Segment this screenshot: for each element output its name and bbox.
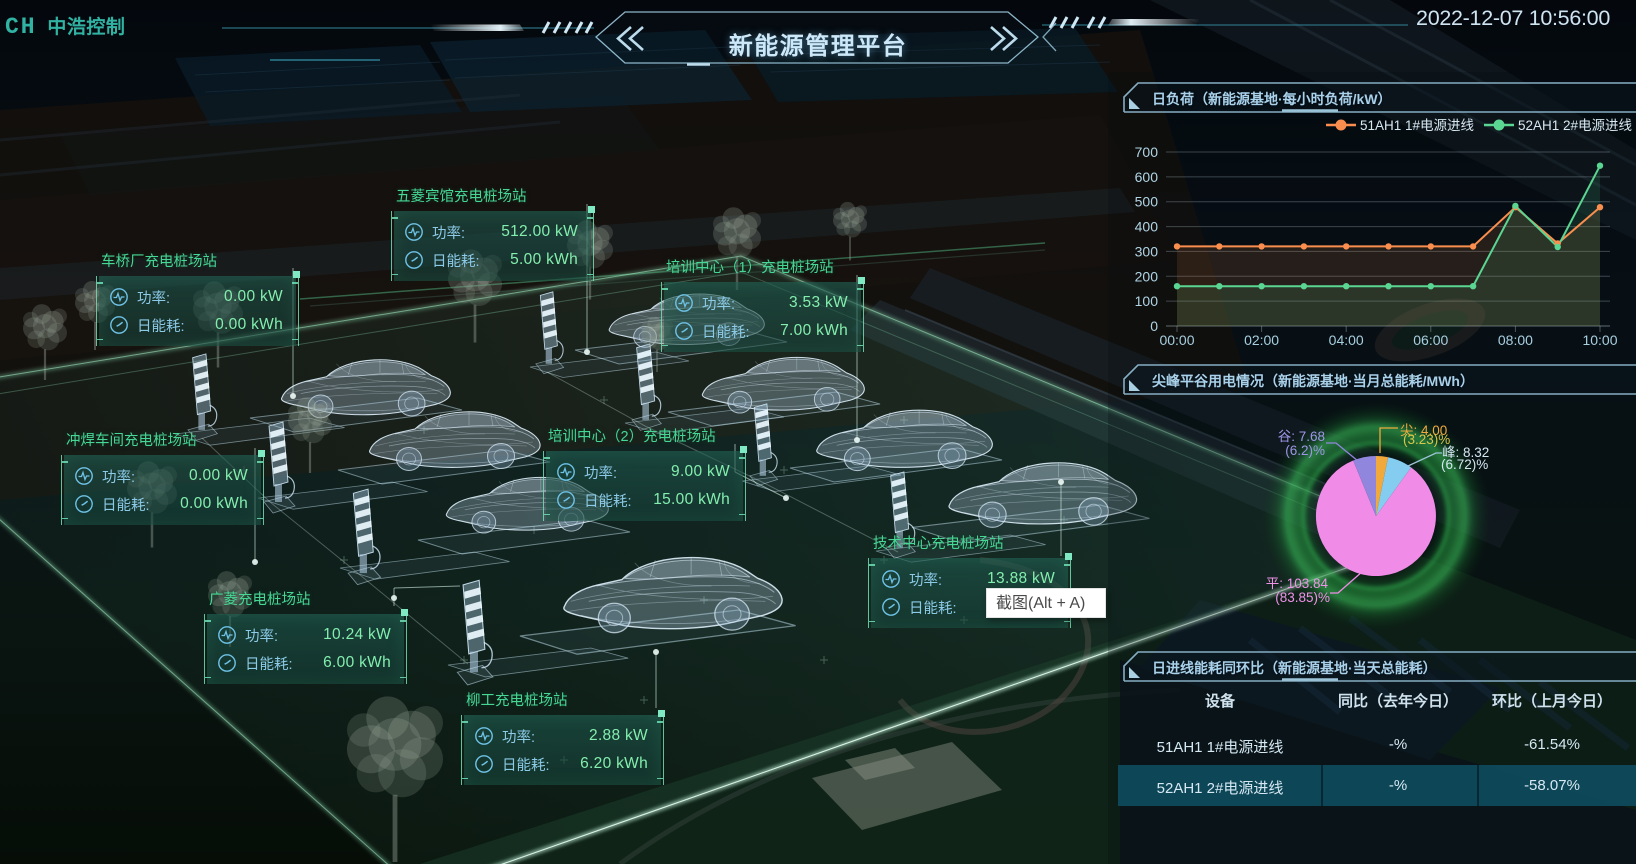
svg-text:谷: 7.68: 谷: 7.68 bbox=[1278, 429, 1325, 444]
svg-text:06:00: 06:00 bbox=[1413, 332, 1448, 348]
svg-text:00:00: 00:00 bbox=[1159, 332, 1194, 348]
svg-text:700: 700 bbox=[1135, 144, 1159, 160]
svg-text:500: 500 bbox=[1135, 194, 1159, 210]
svg-text:(83.85)%: (83.85)% bbox=[1275, 590, 1330, 605]
svg-text:100: 100 bbox=[1135, 293, 1159, 309]
svg-text:0: 0 bbox=[1150, 318, 1158, 334]
svg-text:300: 300 bbox=[1135, 243, 1159, 259]
svg-text:600: 600 bbox=[1135, 169, 1159, 185]
svg-text:02:00: 02:00 bbox=[1244, 332, 1279, 348]
svg-text:(6.2)%: (6.2)% bbox=[1285, 443, 1325, 458]
svg-text:04:00: 04:00 bbox=[1329, 332, 1364, 348]
svg-text:200: 200 bbox=[1135, 268, 1159, 284]
svg-text:51AH1 1#电源进线: 51AH1 1#电源进线 bbox=[1360, 118, 1474, 133]
svg-text:平: 103.84: 平: 103.84 bbox=[1266, 576, 1329, 591]
svg-text:08:00: 08:00 bbox=[1498, 332, 1533, 348]
svg-text:(6.72)%: (6.72)% bbox=[1441, 457, 1488, 472]
svg-text:400: 400 bbox=[1135, 219, 1159, 235]
svg-text:10:00: 10:00 bbox=[1582, 332, 1617, 348]
svg-text:52AH1 2#电源进线: 52AH1 2#电源进线 bbox=[1518, 118, 1632, 133]
